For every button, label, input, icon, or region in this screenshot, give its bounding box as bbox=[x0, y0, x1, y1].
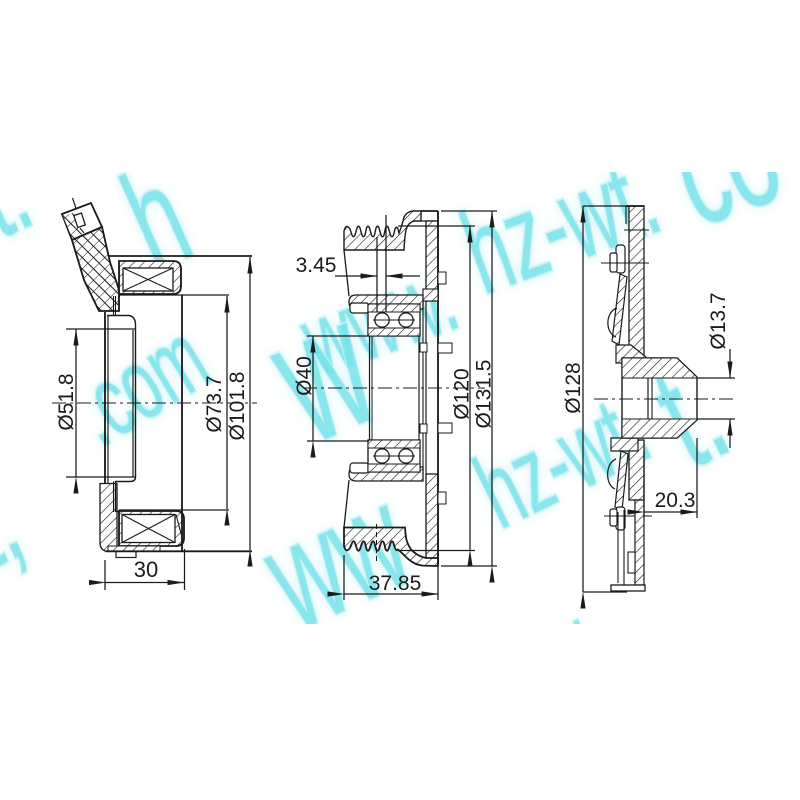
svg-text:Ø101.8: Ø101.8 bbox=[226, 372, 249, 441]
svg-text:37.85: 37.85 bbox=[369, 572, 422, 595]
svg-text:Ø51.8: Ø51.8 bbox=[55, 373, 78, 430]
svg-text:Ø13.7: Ø13.7 bbox=[707, 292, 730, 349]
svg-text:30: 30 bbox=[134, 557, 158, 582]
svg-text:Ø120: Ø120 bbox=[451, 368, 474, 419]
svg-text:Ø128: Ø128 bbox=[562, 362, 585, 413]
svg-text:Ø73.7: Ø73.7 bbox=[203, 375, 226, 432]
svg-text:3.45: 3.45 bbox=[296, 254, 337, 277]
svg-text:Ø40: Ø40 bbox=[293, 356, 316, 396]
svg-text:Ø131.5: Ø131.5 bbox=[473, 360, 496, 429]
svg-text:20.3: 20.3 bbox=[655, 489, 696, 512]
